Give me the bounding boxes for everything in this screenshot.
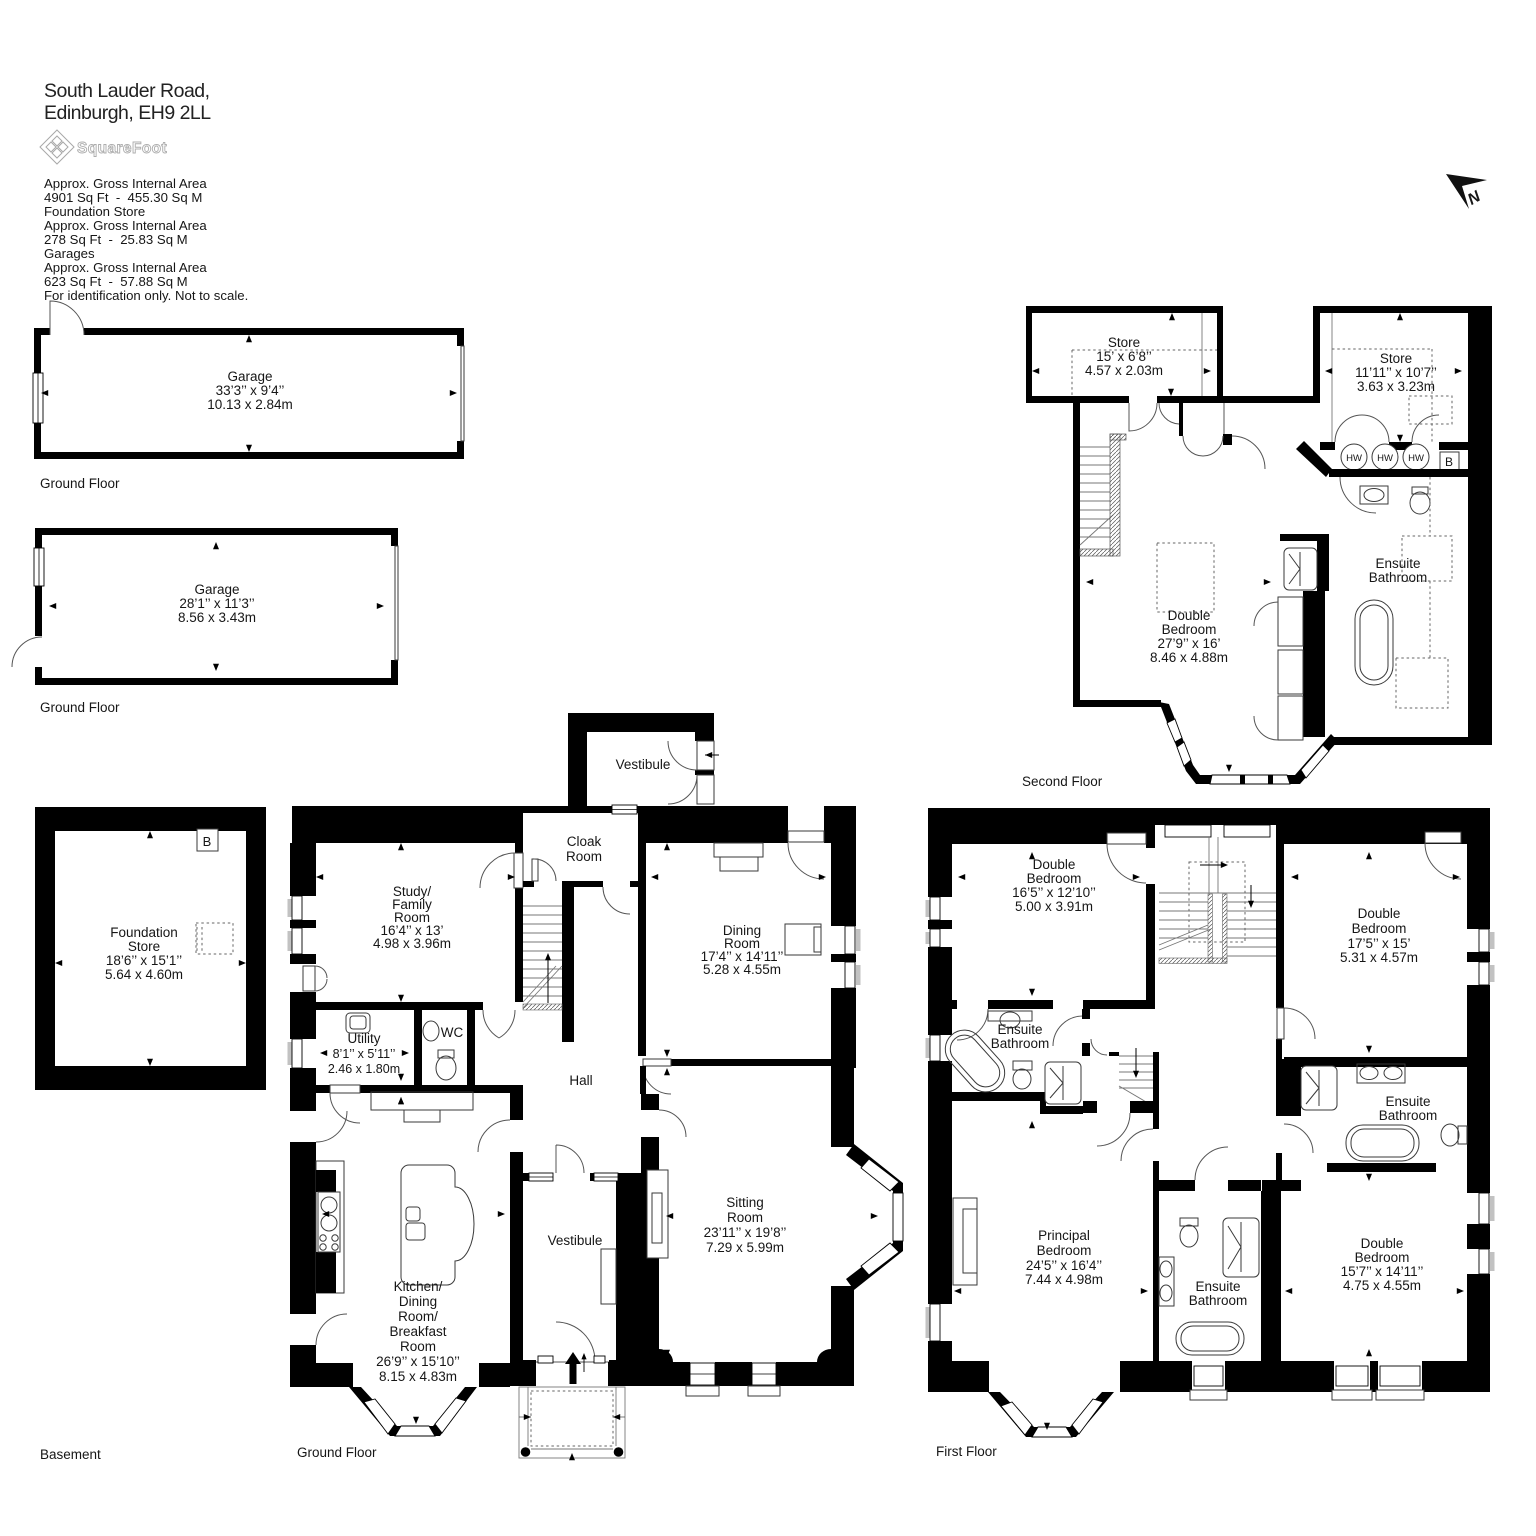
svg-text:4.98 x 3.96m: 4.98 x 3.96m [373, 936, 451, 951]
svg-text:Ground Floor: Ground Floor [40, 476, 120, 491]
svg-text:15’7’’ x 14’11’’: 15’7’’ x 14’11’’ [1341, 1264, 1424, 1279]
svg-text:Ensuite: Ensuite [997, 1022, 1042, 1037]
svg-text:23’11’’ x 19’8’’: 23’11’’ x 19’8’’ [704, 1225, 787, 1240]
svg-text:For identification only. Not t: For identification only. Not to scale. [44, 288, 248, 303]
svg-text:Principal: Principal [1038, 1228, 1090, 1243]
svg-text:Edinburgh, EH9 2LL: Edinburgh, EH9 2LL [44, 102, 211, 124]
svg-text:5.28 x 4.55m: 5.28 x 4.55m [703, 962, 781, 977]
svg-text:7.44 x 4.98m: 7.44 x 4.98m [1025, 1272, 1103, 1287]
svg-text:5.00 x 3.91m: 5.00 x 3.91m [1015, 899, 1093, 914]
svg-text:Hall: Hall [569, 1073, 592, 1088]
svg-text:Ground Floor: Ground Floor [40, 700, 120, 715]
svg-text:623 Sq Ft - 57.88 Sq M: 623 Sq Ft - 57.88 Sq M [44, 274, 188, 289]
svg-text:8.46 x 4.88m: 8.46 x 4.88m [1150, 650, 1228, 665]
svg-text:Room: Room [400, 1339, 436, 1354]
svg-text:Room/: Room/ [398, 1309, 438, 1324]
svg-text:Store: Store [1380, 351, 1412, 366]
svg-text:Vestibule: Vestibule [616, 757, 671, 772]
svg-text:First Floor: First Floor [936, 1444, 997, 1459]
svg-text:Double: Double [1358, 906, 1401, 921]
svg-text:Kitchen/: Kitchen/ [394, 1279, 443, 1294]
svg-text:Double: Double [1361, 1236, 1404, 1251]
svg-text:4.57 x 2.03m: 4.57 x 2.03m [1085, 363, 1163, 378]
svg-text:Approx. Gross Internal Area: Approx. Gross Internal Area [44, 260, 207, 275]
svg-text:Ensuite: Ensuite [1385, 1094, 1430, 1109]
svg-text:Bedroom: Bedroom [1355, 1250, 1410, 1265]
svg-text:SquareFoot: SquareFoot [77, 140, 167, 157]
svg-text:Bedroom: Bedroom [1352, 921, 1407, 936]
svg-text:15’ x 6’8’’: 15’ x 6’8’’ [1096, 349, 1152, 364]
svg-text:Bedroom: Bedroom [1027, 871, 1082, 886]
svg-text:South Lauder Road,: South Lauder Road, [44, 80, 210, 102]
svg-text:3.63 x 3.23m: 3.63 x 3.23m [1357, 379, 1435, 394]
svg-text:17’5’’ x 15’: 17’5’’ x 15’ [1347, 936, 1410, 951]
svg-text:5.64 x 4.60m: 5.64 x 4.60m [105, 967, 183, 982]
svg-text:8.15 x 4.83m: 8.15 x 4.83m [379, 1369, 457, 1384]
svg-text:33’3’’ x 9’4’’: 33’3’’ x 9’4’’ [216, 383, 285, 398]
svg-text:Bathroom: Bathroom [1189, 1293, 1248, 1308]
svg-text:Vestibule: Vestibule [548, 1233, 603, 1248]
svg-text:18’6’’ x 15’1’’: 18’6’’ x 15’1’’ [106, 953, 182, 968]
svg-text:11’11’’ x 10’7’’: 11’11’’ x 10’7’’ [1355, 365, 1437, 380]
svg-text:Sitting: Sitting [726, 1195, 764, 1210]
svg-text:8’1’’ x 5’11’’: 8’1’’ x 5’11’’ [333, 1047, 396, 1061]
svg-text:5.31 x 4.57m: 5.31 x 4.57m [1340, 950, 1418, 965]
svg-text:7.29 x 5.99m: 7.29 x 5.99m [706, 1240, 784, 1255]
svg-text:26’9’’ x 15’10’’: 26’9’’ x 15’10’’ [376, 1354, 460, 1369]
svg-text:Bedroom: Bedroom [1037, 1243, 1092, 1258]
svg-text:16’5’’ x 12’10’’: 16’5’’ x 12’10’’ [1012, 885, 1096, 900]
svg-text:B: B [203, 834, 212, 849]
svg-text:WC: WC [441, 1025, 464, 1040]
svg-text:Bathroom: Bathroom [991, 1036, 1050, 1051]
svg-text:24’5’’ x 16’4’’: 24’5’’ x 16’4’’ [1026, 1258, 1102, 1273]
svg-text:Double: Double [1168, 608, 1211, 623]
svg-text:Approx. Gross Internal Area: Approx. Gross Internal Area [44, 218, 207, 233]
svg-text:Bedroom: Bedroom [1162, 622, 1217, 637]
svg-text:278 Sq Ft - 25.83 Sq M: 278 Sq Ft - 25.83 Sq M [44, 232, 188, 247]
svg-text:Room: Room [566, 849, 602, 864]
svg-text:4901 Sq Ft - 455.30 Sq M: 4901 Sq Ft - 455.30 Sq M [44, 190, 202, 205]
svg-text:HW: HW [1408, 453, 1424, 464]
svg-text:Ensuite: Ensuite [1195, 1279, 1240, 1294]
svg-text:Foundation: Foundation [110, 925, 178, 940]
svg-text:Bathroom: Bathroom [1369, 570, 1428, 585]
svg-text:Approx. Gross Internal Area: Approx. Gross Internal Area [44, 176, 207, 191]
svg-text:Basement: Basement [40, 1447, 101, 1462]
svg-text:Foundation Store: Foundation Store [44, 204, 145, 219]
svg-text:HW: HW [1346, 453, 1362, 464]
svg-text:Bathroom: Bathroom [1379, 1108, 1438, 1123]
svg-text:2.46 x 1.80m: 2.46 x 1.80m [328, 1062, 400, 1076]
svg-text:Store: Store [128, 939, 160, 954]
svg-text:B: B [1445, 455, 1453, 469]
svg-text:4.75 x 4.55m: 4.75 x 4.55m [1343, 1278, 1421, 1293]
svg-text:27’9’’ x 16’: 27’9’’ x 16’ [1157, 636, 1220, 651]
svg-text:Cloak: Cloak [567, 834, 602, 849]
svg-text:Ground Floor: Ground Floor [297, 1445, 377, 1460]
svg-text:Breakfast: Breakfast [389, 1324, 446, 1339]
svg-text:Garages: Garages [44, 246, 95, 261]
svg-text:Utility: Utility [348, 1031, 381, 1046]
svg-text:HW: HW [1377, 453, 1393, 464]
svg-text:10.13 x 2.84m: 10.13 x 2.84m [207, 397, 293, 412]
svg-text:Second Floor: Second Floor [1022, 774, 1103, 789]
svg-text:8.56 x 3.43m: 8.56 x 3.43m [178, 610, 256, 625]
svg-text:Ensuite: Ensuite [1375, 556, 1420, 571]
svg-text:Garage: Garage [194, 582, 239, 597]
svg-text:Room: Room [727, 1210, 763, 1225]
svg-text:Dining: Dining [399, 1294, 437, 1309]
svg-text:Garage: Garage [227, 369, 272, 384]
svg-text:Store: Store [1108, 335, 1140, 350]
svg-text:Double: Double [1033, 857, 1076, 872]
svg-text:28’1’’ x 11’3’’: 28’1’’ x 11’3’’ [179, 596, 254, 611]
